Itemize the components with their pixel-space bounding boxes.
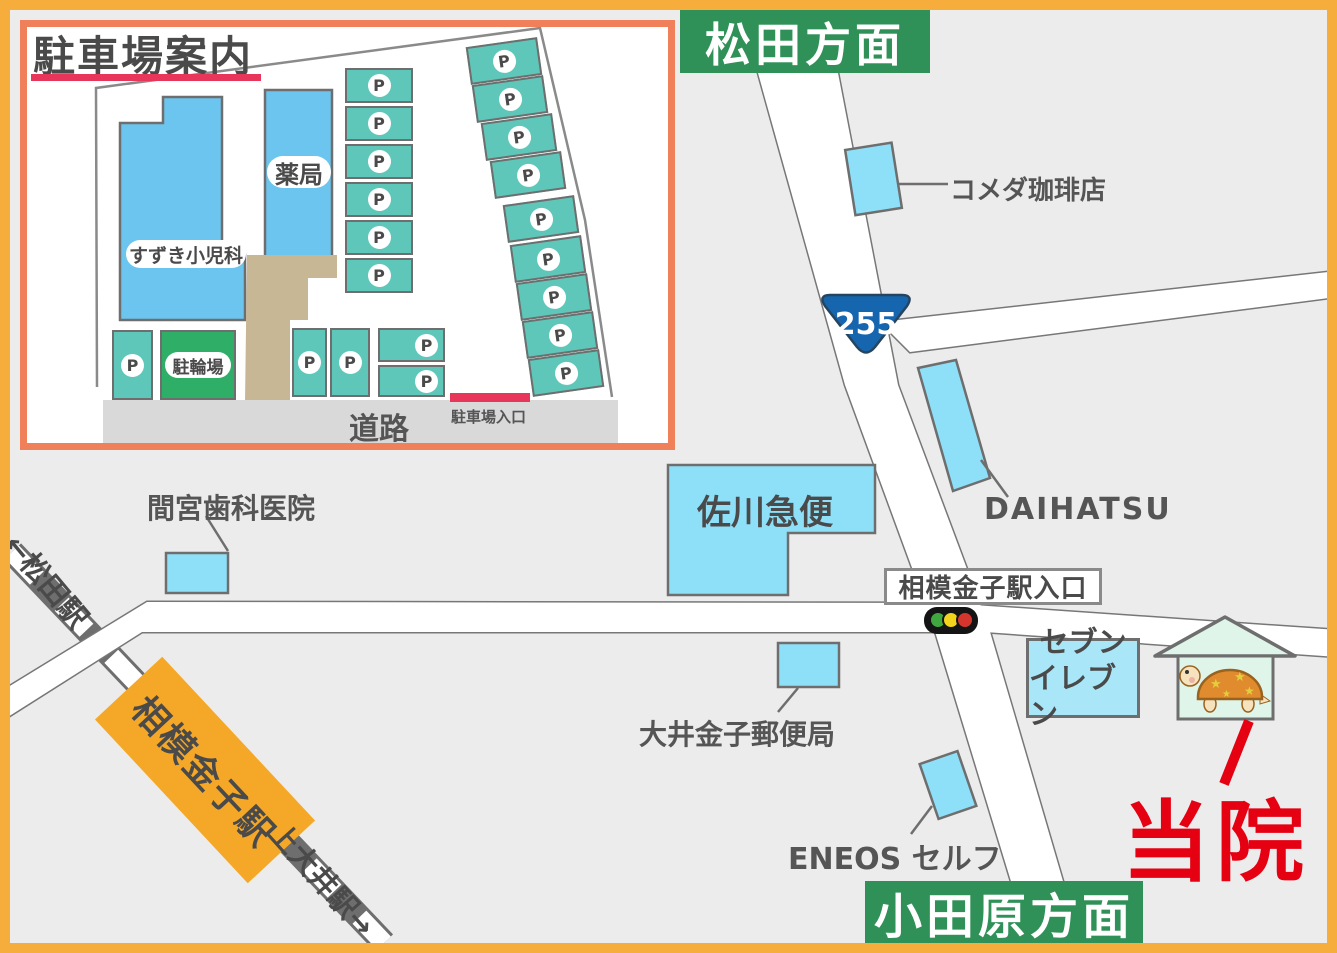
parking-spot-label: P xyxy=(547,322,573,348)
label-komeda: コメダ珈琲店 xyxy=(950,170,1106,207)
pharmacy-label: 薬局 xyxy=(267,156,331,188)
inset-road-label: 道路 xyxy=(329,404,429,448)
parking-spot-label: P xyxy=(121,354,144,377)
parking-spot-label: P xyxy=(528,206,554,232)
parking-spot-label: P xyxy=(368,226,391,249)
parking-entrance-label: 駐車場入口 xyxy=(451,406,526,427)
label-mamiya: 間宮歯科医院 xyxy=(147,487,315,527)
route-number: 255 xyxy=(835,307,898,342)
parking-spot: P xyxy=(345,68,413,103)
sign-matsuda-direction: 松田方面 xyxy=(680,10,930,73)
parking-spot: P xyxy=(330,328,370,397)
bicycle-parking: 駐輪場 xyxy=(160,330,236,400)
parking-inset: 駐車場案内 薬局 すずき小児科 駐輪場 PPPPPPPPPPPPPPPPPPPP… xyxy=(20,20,675,450)
parking-spot-label: P xyxy=(415,370,438,393)
parking-spot-label: P xyxy=(497,86,523,112)
traffic-light-icon xyxy=(924,607,978,634)
parking-spot: P xyxy=(345,258,413,293)
parking-spot-label: P xyxy=(553,360,579,386)
pediatrics-label: すずき小児科 xyxy=(126,240,246,268)
parking-spot-label: P xyxy=(491,48,517,74)
map-canvas: 255 ★ ★ ★ ★ 松田方面 小田原方面 コメダ珈琲店 xyxy=(0,0,1337,953)
bicycle-parking-label: 駐輪場 xyxy=(165,352,231,378)
parking-entrance-bar xyxy=(450,393,530,402)
label-post-office: 大井金子郵便局 xyxy=(639,713,835,753)
pointer-post-office xyxy=(778,688,798,712)
seven-eleven-line2: イレブン xyxy=(1029,660,1137,732)
svg-text:★: ★ xyxy=(1222,689,1231,700)
parking-spot-label: P xyxy=(515,162,541,188)
building-komeda xyxy=(845,143,902,216)
parking-spot-label: P xyxy=(368,264,391,287)
parking-spot-label: P xyxy=(415,334,438,357)
parking-spot: P xyxy=(345,144,413,179)
parking-spot-label: P xyxy=(541,284,567,310)
sign-odawara-direction: 小田原方面 xyxy=(865,881,1143,943)
parking-spot-label: P xyxy=(339,351,362,374)
label-eneos: ENEOS セルフ xyxy=(788,834,1002,878)
svg-text:★: ★ xyxy=(1244,684,1255,698)
parking-spot: P xyxy=(112,330,153,400)
parking-spot: P xyxy=(378,328,445,362)
parking-spot-label: P xyxy=(298,351,321,374)
parking-spot: P xyxy=(345,220,413,255)
building-eneos xyxy=(920,751,977,819)
clinic-here-label: 当院 xyxy=(1122,772,1310,899)
svg-text:★: ★ xyxy=(1234,670,1246,685)
parking-spot-label: P xyxy=(368,112,391,135)
label-sagawa: 佐川急便 xyxy=(697,485,833,534)
building-mamiya xyxy=(166,553,228,593)
building-post-office xyxy=(778,643,839,687)
parking-spot: P xyxy=(378,365,445,397)
parking-spot-label: P xyxy=(506,124,532,150)
parking-spot-label: P xyxy=(368,74,391,97)
parking-spot-label: P xyxy=(535,246,561,272)
parking-spot-label: P xyxy=(368,150,391,173)
seven-eleven-line1: セブン xyxy=(1039,624,1126,660)
intersection-name-box: 相模金子駅入口 xyxy=(884,568,1102,605)
parking-spot: P xyxy=(345,106,413,141)
parking-spot-label: P xyxy=(368,188,391,211)
seven-eleven-box: セブン イレブン xyxy=(1026,638,1140,718)
building-suzuki-pediatrics xyxy=(120,97,245,320)
pointer-eneos xyxy=(911,806,932,834)
inset-title-underline xyxy=(31,74,261,81)
parking-spot: P xyxy=(292,328,327,397)
label-daihatsu: DAIHATSU xyxy=(984,492,1172,527)
parking-spot: P xyxy=(345,182,413,217)
svg-text:★: ★ xyxy=(1210,677,1222,692)
